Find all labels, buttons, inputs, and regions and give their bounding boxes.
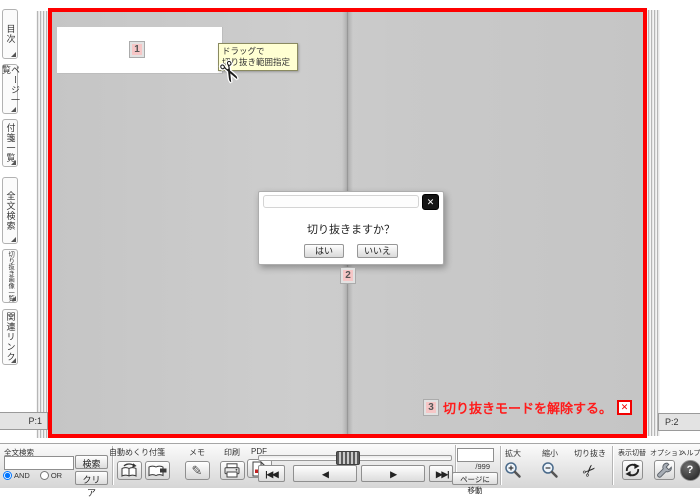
sidebar-tab-label: ページ一覧	[1, 65, 19, 113]
last-page-button[interactable]: ▶▶|	[429, 465, 453, 482]
zoom-out-icon[interactable]	[541, 461, 559, 479]
page-number-tab-left: P:1	[0, 412, 48, 430]
page-stack-left	[36, 11, 48, 438]
yes-button[interactable]: はい	[304, 244, 344, 258]
zoom-in-label: 拡大	[500, 448, 526, 459]
sidebar-tab-clip-image-list[interactable]: 切り抜き画像一覧	[2, 249, 18, 303]
sidebar-tab-related-links[interactable]: 関連リンク	[2, 309, 18, 365]
close-icon[interactable]: ✕	[422, 194, 439, 210]
toolbar-separator	[612, 446, 613, 485]
tab-corner-icon	[11, 107, 16, 112]
tab-corner-icon	[11, 237, 16, 242]
clip-cancel-x-icon[interactable]: ✕	[617, 400, 632, 415]
memo-tool: メモ ✎	[181, 447, 213, 480]
sticky-note-book-icon	[147, 464, 167, 478]
sidebar-tab-label: 付箋一覧	[6, 123, 15, 163]
prev-page-button[interactable]: ◀	[293, 465, 357, 482]
display-toggle-tool: 表示切替	[616, 448, 648, 480]
memo-button[interactable]: ✎	[185, 461, 210, 480]
book-flip-icon	[119, 463, 139, 478]
annotation-text: 切り抜きモードを解除する。	[443, 398, 612, 417]
sidebar-tab-fusen-list[interactable]: 付箋一覧	[2, 119, 18, 167]
step-marker-1: 1	[130, 42, 144, 57]
step-marker-3: 3	[424, 400, 438, 415]
next-page-button[interactable]: ▶	[361, 465, 425, 482]
clip-tool: 切り抜き ✂	[572, 448, 608, 481]
dialog-title-bar	[263, 195, 419, 208]
sidebar-tab-label: 全文検索	[6, 191, 15, 231]
no-button[interactable]: いいえ	[357, 244, 398, 258]
tab-corner-icon	[11, 52, 16, 57]
help-tool: ヘルプ ?	[678, 448, 700, 481]
zoom-out-tool: 縮小	[537, 448, 563, 484]
tooltip-line-1: ドラッグで	[222, 46, 294, 57]
search-input[interactable]	[4, 456, 74, 470]
help-label: ヘルプ	[678, 448, 700, 458]
zoom-in-tool: 拡大	[500, 448, 526, 484]
and-radio[interactable]	[3, 471, 12, 480]
page-stack-right	[647, 10, 660, 436]
sidebar-tab-label: 関連リンク	[6, 312, 15, 362]
printer-icon	[223, 463, 241, 478]
dialog-message: 切り抜きますか？	[259, 221, 443, 237]
options-button[interactable]	[654, 460, 675, 480]
tab-corner-icon	[11, 160, 16, 165]
page-total-label: /999	[455, 462, 490, 471]
book-spread-viewer[interactable]: 1 ドラッグで 切り抜き範囲指定 ✂ ✕ 切り抜きますか？ はい いいえ 2 3…	[48, 8, 647, 438]
page-slider-thumb[interactable]	[336, 451, 360, 465]
fusen-button[interactable]	[145, 461, 170, 480]
tab-corner-icon	[11, 296, 16, 301]
pencil-icon: ✎	[192, 463, 203, 479]
dialog-button-row: はい いいえ	[259, 244, 443, 258]
sidebar-tab-label: 切り抜き画像一覧	[7, 251, 13, 301]
options-label: オプション	[650, 448, 678, 458]
sidebar-tab-page-list[interactable]: ページ一覧	[2, 64, 18, 114]
options-tool: オプション	[650, 448, 678, 480]
clip-label: 切り抜き	[572, 448, 608, 459]
auto-pageturn-button[interactable]	[117, 461, 142, 480]
sidebar-tab-toc[interactable]: 目次	[2, 9, 18, 59]
sidebar-tab-fulltext-search[interactable]: 全文検索	[2, 177, 18, 244]
clear-button[interactable]: クリア	[75, 471, 108, 485]
page-jump-button[interactable]: ページに移動	[452, 472, 498, 485]
search-button[interactable]: 検索	[75, 455, 108, 469]
page-number-input[interactable]	[457, 448, 494, 462]
search-logic-radios: AND OR	[3, 471, 62, 480]
zoom-out-label: 縮小	[537, 448, 563, 459]
wrench-icon	[656, 462, 672, 478]
clip-confirm-dialog: ✕ 切り抜きますか？ はい いいえ	[258, 191, 444, 265]
or-radio[interactable]	[40, 471, 49, 480]
fusen-label: 付箋	[142, 447, 172, 458]
fusen-tool: 付箋	[142, 447, 172, 480]
zoom-in-icon[interactable]	[504, 461, 522, 479]
page-number-tab-right: P:2	[658, 413, 700, 431]
help-icon[interactable]: ?	[680, 460, 700, 481]
step-marker-2: 2	[341, 268, 355, 283]
tab-corner-icon	[11, 358, 16, 363]
bottom-toolbar: 全文検索 検索 AND OR クリア 自動めくり 付箋 メモ	[0, 443, 700, 488]
memo-label: メモ	[181, 447, 213, 458]
clip-mode-cancel-annotation: 3 切り抜きモードを解除する。 ✕	[424, 398, 632, 417]
display-toggle-button[interactable]	[622, 460, 643, 480]
refresh-arrows-icon	[624, 462, 641, 478]
and-label: AND	[14, 471, 30, 480]
print-button[interactable]	[220, 461, 245, 480]
scissors-icon[interactable]: ✂	[578, 459, 602, 483]
sidebar-tab-label: 目次	[6, 24, 15, 44]
first-page-button[interactable]: |◀◀	[258, 465, 285, 482]
or-label: OR	[51, 471, 62, 480]
display-toggle-label: 表示切替	[616, 448, 648, 458]
